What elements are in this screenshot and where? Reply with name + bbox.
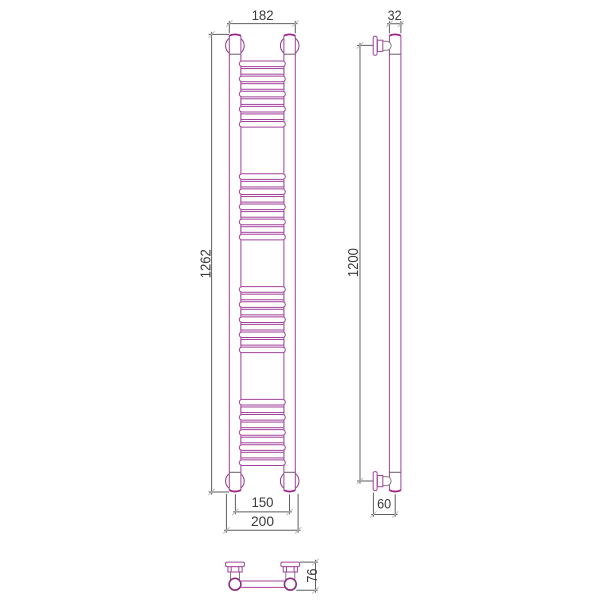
svg-text:182: 182 [252,8,274,23]
svg-text:76: 76 [304,569,321,583]
svg-text:1200: 1200 [345,248,362,277]
svg-text:1262: 1262 [197,249,214,278]
svg-text:60: 60 [377,497,391,512]
svg-text:150: 150 [252,495,274,510]
svg-text:200: 200 [251,514,274,529]
svg-text:32: 32 [388,8,402,23]
